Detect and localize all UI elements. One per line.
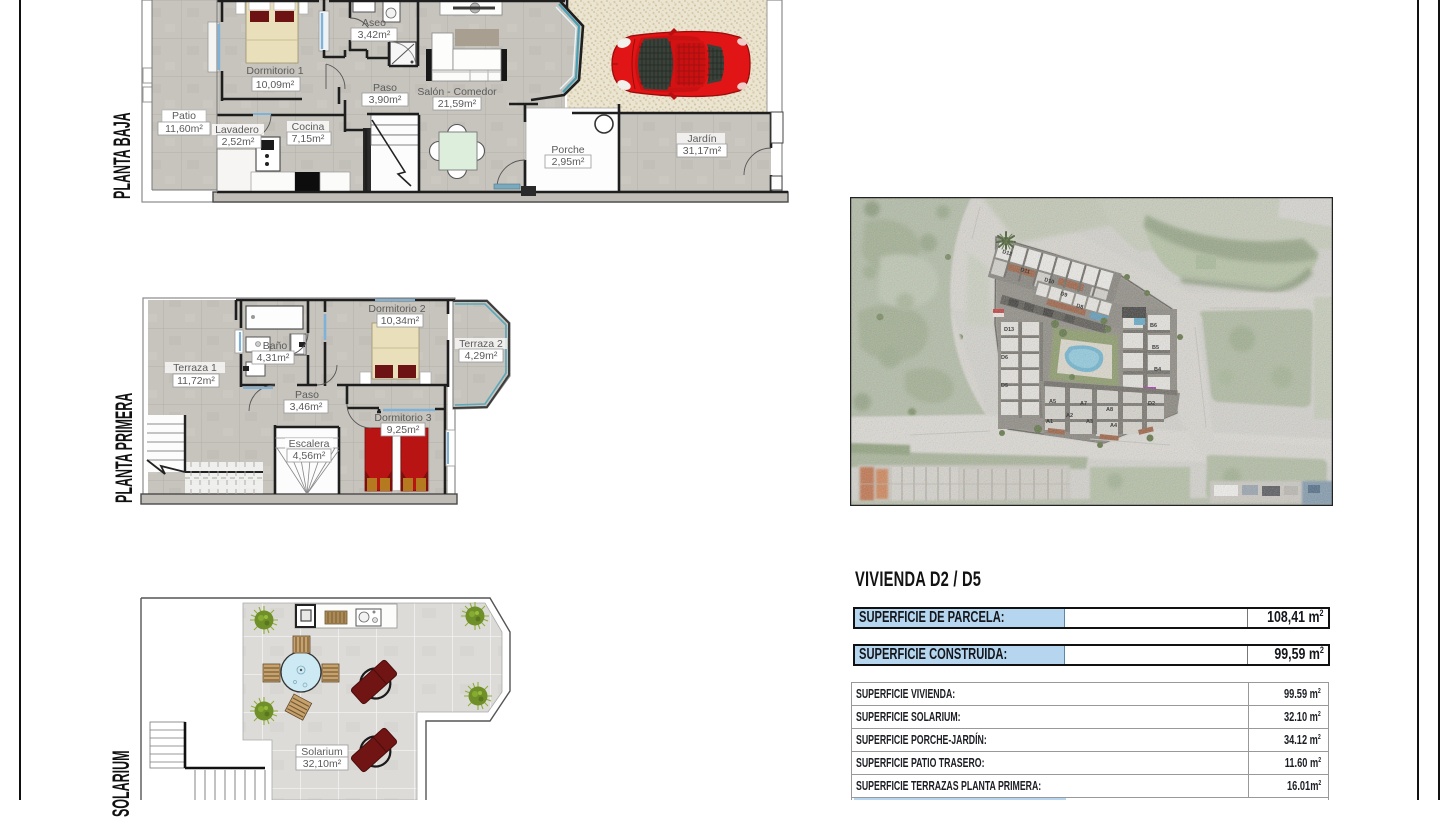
svg-text:Dormitorio 3: Dormitorio 3 bbox=[374, 412, 431, 424]
svg-text:11,60m²: 11,60m² bbox=[165, 123, 203, 135]
svg-text:Escalera: Escalera bbox=[289, 438, 330, 450]
svg-text:21,59m²: 21,59m² bbox=[438, 98, 477, 110]
svg-text:4,31m²: 4,31m² bbox=[257, 352, 290, 364]
svg-text:Dormitorio 1: Dormitorio 1 bbox=[246, 65, 303, 77]
svg-text:11,72m²: 11,72m² bbox=[177, 375, 215, 387]
svg-text:Aseo: Aseo bbox=[362, 17, 386, 29]
svg-text:3,46m²: 3,46m² bbox=[290, 401, 323, 413]
svg-text:3,42m²: 3,42m² bbox=[358, 29, 391, 41]
svg-text:Solarium: Solarium bbox=[301, 746, 343, 758]
svg-text:31,17m²: 31,17m² bbox=[683, 145, 722, 157]
svg-text:Paso: Paso bbox=[295, 389, 319, 401]
svg-text:Porche: Porche bbox=[551, 144, 584, 156]
svg-text:4,29m²: 4,29m² bbox=[465, 350, 498, 362]
svg-text:Terraza 1: Terraza 1 bbox=[173, 362, 217, 374]
svg-text:Baño: Baño bbox=[263, 340, 288, 352]
svg-text:Terraza 2: Terraza 2 bbox=[459, 338, 503, 350]
svg-text:Paso: Paso bbox=[373, 82, 397, 94]
svg-text:7,15m²: 7,15m² bbox=[292, 133, 325, 145]
svg-text:Cocina: Cocina bbox=[292, 121, 325, 133]
svg-text:9,25m²: 9,25m² bbox=[387, 424, 420, 436]
svg-text:Jardín: Jardín bbox=[687, 133, 716, 145]
svg-text:32,10m²: 32,10m² bbox=[303, 758, 342, 770]
svg-text:2,95m²: 2,95m² bbox=[552, 156, 585, 168]
svg-text:Patio: Patio bbox=[172, 110, 196, 122]
svg-text:4,56m²: 4,56m² bbox=[293, 450, 326, 462]
svg-text:2,52m²: 2,52m² bbox=[222, 136, 255, 148]
svg-text:3,90m²: 3,90m² bbox=[369, 94, 402, 106]
svg-text:Dormitorio 2: Dormitorio 2 bbox=[368, 303, 425, 315]
svg-text:Salón - Comedor: Salón - Comedor bbox=[417, 86, 497, 98]
svg-text:Lavadero: Lavadero bbox=[215, 124, 259, 136]
svg-text:10,09m²: 10,09m² bbox=[256, 79, 295, 91]
svg-text:10,34m²: 10,34m² bbox=[381, 315, 420, 327]
